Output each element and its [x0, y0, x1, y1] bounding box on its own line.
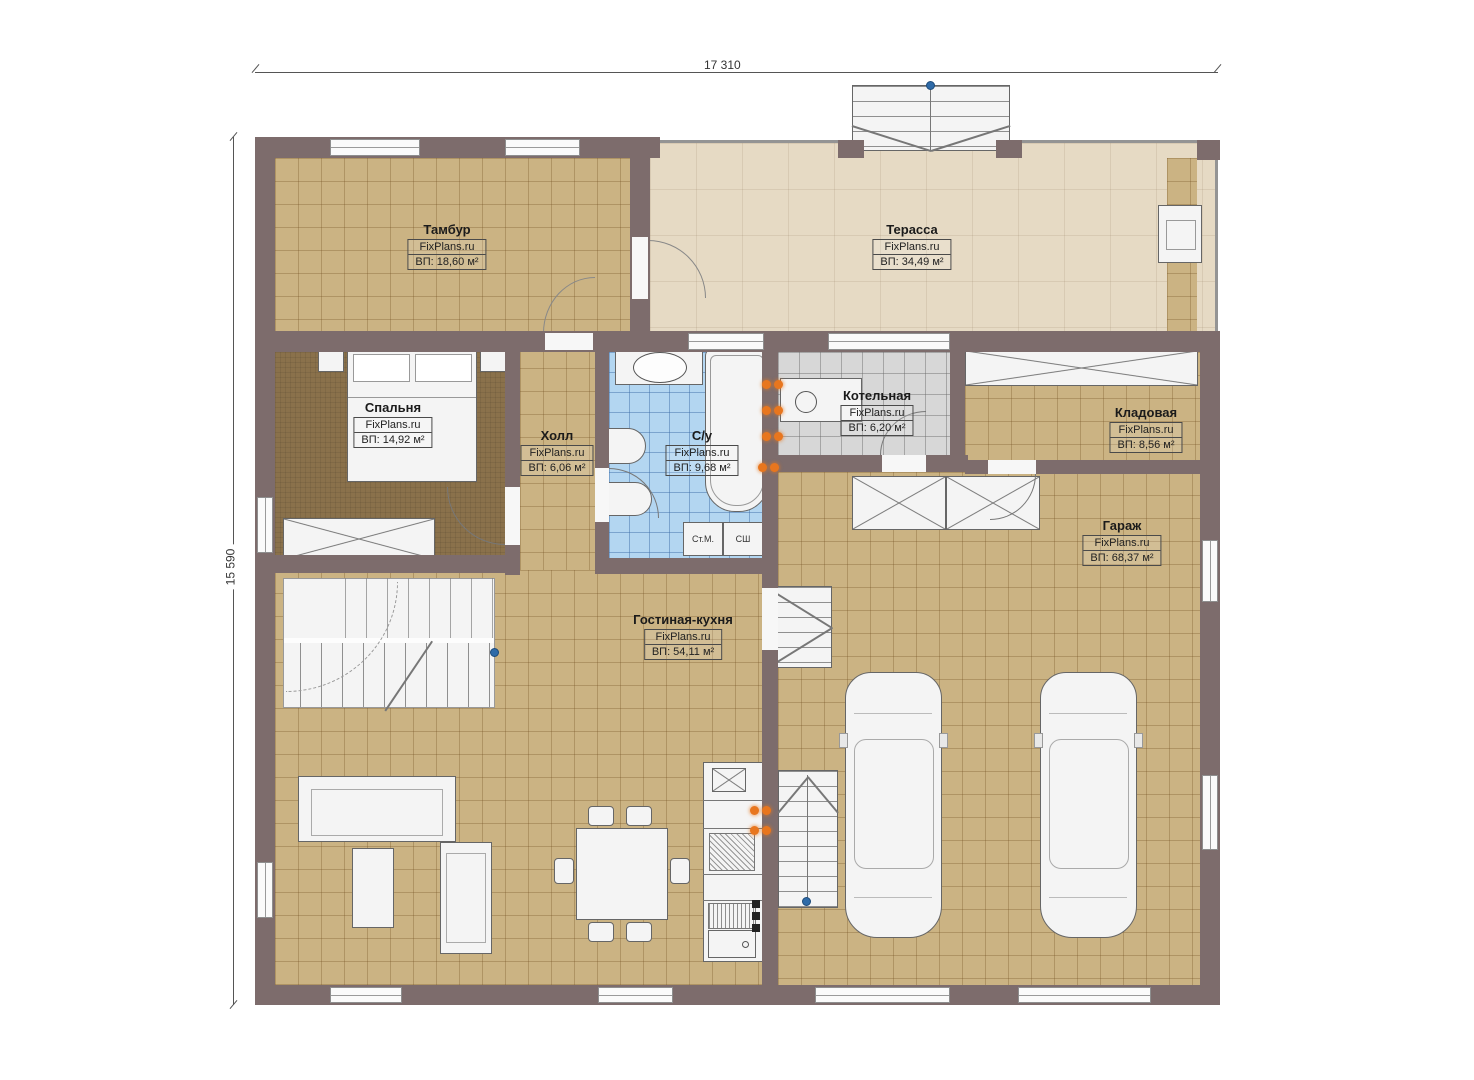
wall-right: [1200, 345, 1220, 1005]
door-opening-bedroom: [505, 487, 520, 545]
garage-door-1: [815, 987, 950, 1003]
kitchen-divider: [703, 800, 763, 801]
fridge-handle: [742, 941, 749, 948]
car-hood-line: [1049, 713, 1127, 714]
dryer-label: СШ: [736, 534, 751, 544]
window-garage-right-1: [1202, 540, 1218, 602]
room-label-vestibule: Тамбур FixPlans.ruВП: 18,60 м²: [407, 222, 486, 270]
room-label-boiler: Котельная FixPlans.ruВП: 6,20 м²: [840, 388, 913, 436]
room-label-bedroom: Спальня FixPlans.ruВП: 14,92 м²: [353, 400, 432, 448]
garage-stairs-marker: [802, 897, 811, 906]
radiator-icon: [762, 380, 783, 389]
wall-boiler-right: [950, 345, 965, 472]
terrace-stairs-marker: [926, 81, 935, 90]
wall-garage-left: [762, 345, 778, 985]
room-label-garage: Гараж FixPlans.ruВП: 68,37 м²: [1082, 518, 1161, 566]
boiler-unit: [795, 391, 817, 413]
washer-box: Ст.М.: [683, 522, 723, 556]
dimension-left-label: 15 590: [223, 545, 237, 590]
kitchen-divider: [703, 874, 763, 875]
storage-shelf: [965, 350, 1198, 386]
terrace-grill: [1158, 205, 1202, 263]
garage-shelf-1: [852, 476, 946, 530]
window-living-left: [257, 862, 273, 918]
terrace-stairs-center-line: [930, 85, 931, 151]
radiator-icon: [762, 406, 783, 415]
kitchen-black-box: [752, 900, 760, 908]
dining-chair: [588, 922, 614, 942]
car-1: [845, 672, 942, 938]
terrace-post-corner: [1197, 140, 1220, 160]
radiator-icon: [762, 432, 783, 441]
terrace-entry-stairs: [852, 85, 1010, 151]
car-2: [1040, 672, 1137, 938]
window-vestibule-1: [330, 139, 420, 156]
dryer-box: СШ: [723, 522, 763, 556]
wall-bedroom-bottom: [255, 555, 520, 573]
dining-table: [576, 828, 668, 920]
dining-chair: [626, 922, 652, 942]
dining-chair: [670, 858, 690, 884]
dining-chair: [626, 806, 652, 826]
window-bedroom-left: [257, 497, 273, 553]
garage-side-stairs: [778, 770, 838, 908]
window-garage-right-2: [1202, 775, 1218, 850]
wall-top-vestibule: [255, 137, 660, 158]
terrace-edge-right: [1215, 140, 1218, 346]
room-label-living-kitchen: Гостиная-кухня FixPlans.ruВП: 54,11 м²: [633, 612, 733, 660]
kitchen-black-box: [752, 912, 760, 920]
chaise-inner: [446, 853, 486, 943]
radiator-icon: [758, 463, 779, 472]
garage-stairs-center-line: [807, 775, 808, 903]
window-vestibule-2: [505, 139, 580, 156]
door-opening-boiler: [882, 455, 926, 472]
kitchen-black-box: [752, 924, 760, 932]
window-bathroom-terrace: [688, 333, 764, 350]
car-mirror-right: [939, 733, 948, 748]
window-boiler-terrace: [828, 333, 950, 350]
terrace-grill-inner: [1166, 220, 1196, 250]
terrace-post-left: [838, 140, 864, 158]
kitchen-fridge-coils: [708, 903, 756, 929]
bed-pillow-right: [415, 354, 472, 382]
room-label-bathroom: С/у FixPlans.ruВП: 9,68 м²: [665, 428, 738, 476]
washer-label: Ст.М.: [692, 534, 714, 544]
car-cabin: [854, 739, 934, 869]
terrace-post-right: [996, 140, 1022, 158]
car-mirror-left: [1034, 733, 1043, 748]
radiator-icon: [750, 806, 771, 815]
window-living-bottom-2: [598, 987, 673, 1003]
staircase-marker: [490, 648, 499, 657]
sink-basin: [633, 352, 687, 383]
car-mirror-left: [839, 733, 848, 748]
sofa: [298, 776, 456, 842]
bed-blanket-line: [348, 397, 476, 398]
kitchen-stove: [709, 833, 755, 871]
bedroom-wardrobe: [283, 518, 435, 560]
room-label-storage: Кладовая FixPlans.ruВП: 8,56 м²: [1109, 405, 1182, 453]
wall-hall-bathroom: [595, 345, 609, 570]
dining-chair: [554, 858, 574, 884]
car-hood-line: [854, 713, 932, 714]
door-opening-storage: [988, 460, 1036, 474]
bathroom-sink-counter: [615, 347, 703, 385]
coffee-table: [352, 848, 394, 928]
window-living-bottom-1: [330, 987, 402, 1003]
room-label-terrace: Терасса FixPlans.ruВП: 34,49 м²: [872, 222, 951, 270]
door-opening-bathroom: [595, 468, 609, 522]
garage-door-2: [1018, 987, 1151, 1003]
door-opening-garage-entry: [762, 588, 778, 650]
radiator-icon: [750, 826, 771, 835]
car-cabin: [1049, 739, 1129, 869]
bed-pillow-left: [353, 354, 410, 382]
floor-plan-canvas: 17 310 15 590: [0, 0, 1474, 1080]
door-opening-vestibule-terrace: [632, 237, 648, 299]
car-trunk-line: [1049, 897, 1127, 898]
door-opening-hall-vestibule: [545, 333, 593, 350]
car-mirror-right: [1134, 733, 1143, 748]
dining-chair: [588, 806, 614, 826]
room-label-hall: Холл FixPlans.ruВП: 6,06 м²: [520, 428, 593, 476]
car-trunk-line: [854, 897, 932, 898]
chaise: [440, 842, 492, 954]
dimension-top-label: 17 310: [700, 58, 745, 72]
dimension-line-top: [255, 72, 1218, 73]
sofa-inner: [311, 789, 443, 836]
kitchen-sink: [712, 768, 746, 792]
wall-boiler-bottom: [778, 455, 968, 472]
wall-bathroom-bottom: [595, 558, 778, 574]
kitchen-fridge-door: [708, 930, 756, 958]
